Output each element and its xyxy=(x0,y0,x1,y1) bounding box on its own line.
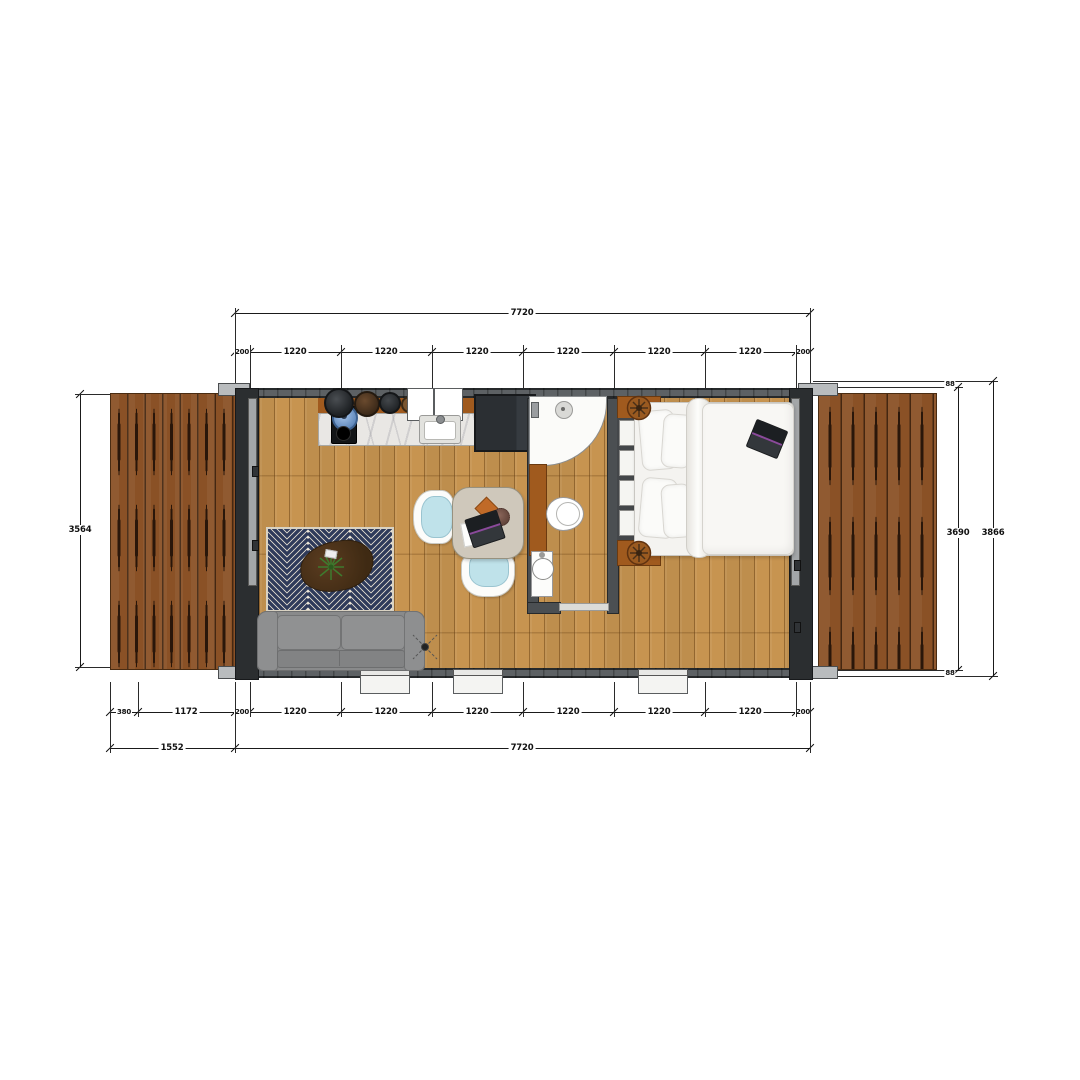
dim-extension-line xyxy=(614,345,615,388)
dim-label: 1220 xyxy=(282,707,309,717)
bathroom-sink-bowl xyxy=(532,558,554,580)
dim-extension-line xyxy=(614,682,615,717)
dim-label: 1220 xyxy=(646,707,673,717)
sofa-arm-left xyxy=(257,611,278,671)
dim-extension-line xyxy=(110,682,111,753)
right-deck xyxy=(818,393,937,670)
dim-extension-line xyxy=(250,345,251,388)
dim-extension-line xyxy=(796,345,797,388)
dim-extension-line xyxy=(341,682,342,717)
bathroom-wall-bottom xyxy=(527,602,561,614)
sofa-seat-cushion xyxy=(341,615,405,650)
dim-label: 1220 xyxy=(737,707,764,717)
sofa-backrest xyxy=(277,650,405,668)
hanging-pot xyxy=(324,388,354,418)
window-glass-line xyxy=(638,669,688,676)
dim-label: 1220 xyxy=(373,707,400,717)
door-handle xyxy=(794,560,801,571)
dim-label: 1220 xyxy=(646,347,673,357)
door-handle xyxy=(252,466,259,477)
dim-label: 200 xyxy=(795,707,811,717)
hanging-pot xyxy=(379,392,401,414)
toilet-seat xyxy=(556,502,580,526)
dim-extension-line xyxy=(523,345,524,388)
bathroom-vanity xyxy=(529,464,547,556)
drain-center xyxy=(561,407,565,411)
dim-label: 1220 xyxy=(464,347,491,357)
bathroom-faucet xyxy=(539,552,545,558)
faucet xyxy=(436,415,445,424)
sofa-seat-cushion xyxy=(277,615,341,650)
dim-label: 1220 xyxy=(555,347,582,357)
dim-extension-line xyxy=(705,345,706,388)
dim-label-bottom-total: 7720 xyxy=(509,743,536,753)
dim-label-right-outer: 3866 xyxy=(980,528,1007,538)
dim-extension-line xyxy=(432,682,433,717)
dim-label: 1220 xyxy=(737,347,764,357)
dim-label: 1220 xyxy=(282,347,309,357)
dim-label: 200 xyxy=(234,347,250,357)
door-handle xyxy=(794,622,801,633)
dim-label: 200 xyxy=(234,707,250,717)
dim-label-offset-top: 88 xyxy=(944,379,955,389)
stool-plant-top xyxy=(626,395,652,421)
dim-label-deck-total: 1552 xyxy=(159,743,186,753)
door-handle xyxy=(252,540,259,551)
dim-extension-line xyxy=(523,682,524,717)
dim-extension-line xyxy=(75,394,115,395)
dim-extension-line xyxy=(813,381,998,382)
dim-label: 1220 xyxy=(555,707,582,717)
dim-label-right-inner: 3690 xyxy=(945,528,972,538)
burner xyxy=(336,426,351,441)
sofa-back-seam xyxy=(339,650,340,666)
window-mullion xyxy=(433,389,435,418)
dim-extension-line xyxy=(235,308,236,388)
shower-faucet xyxy=(531,402,539,418)
window-glass-line xyxy=(453,669,503,676)
dim-extension-line xyxy=(813,676,998,677)
bathroom-door-threshold xyxy=(559,603,609,611)
dim-extension-line xyxy=(796,682,797,717)
dim-label: 1220 xyxy=(464,707,491,717)
dim-label: 1220 xyxy=(373,347,400,357)
left-sliding-door-panel xyxy=(248,398,257,586)
dim-extension-line xyxy=(235,682,236,753)
hanging-pan xyxy=(354,391,380,417)
duvet xyxy=(702,403,794,555)
dim-extension-line xyxy=(341,345,342,388)
dining-chair-cushion xyxy=(421,496,453,538)
dim-extension-line xyxy=(75,667,115,668)
dim-extension-line xyxy=(810,308,811,388)
stool-plant-bottom xyxy=(626,540,652,566)
dim-extension-line xyxy=(138,682,139,717)
dim-extension-line xyxy=(250,682,251,717)
floor-plan-canvas: 7720 200 1220 1220 1220 1220 1220 1220 2… xyxy=(0,0,1080,1080)
dim-label-offset-bottom: 88 xyxy=(944,668,955,678)
dim-extension-line xyxy=(432,345,433,388)
dim-label: 200 xyxy=(795,347,811,357)
ceiling-light-symbol xyxy=(408,630,442,664)
dim-label: 1172 xyxy=(173,707,200,717)
dim-label-top-total: 7720 xyxy=(509,308,536,318)
left-deck xyxy=(110,393,237,670)
dim-label: 380 xyxy=(116,707,132,717)
dim-extension-line xyxy=(810,682,811,753)
dim-label-left-deck: 3564 xyxy=(67,525,94,535)
dim-extension-line xyxy=(705,682,706,717)
